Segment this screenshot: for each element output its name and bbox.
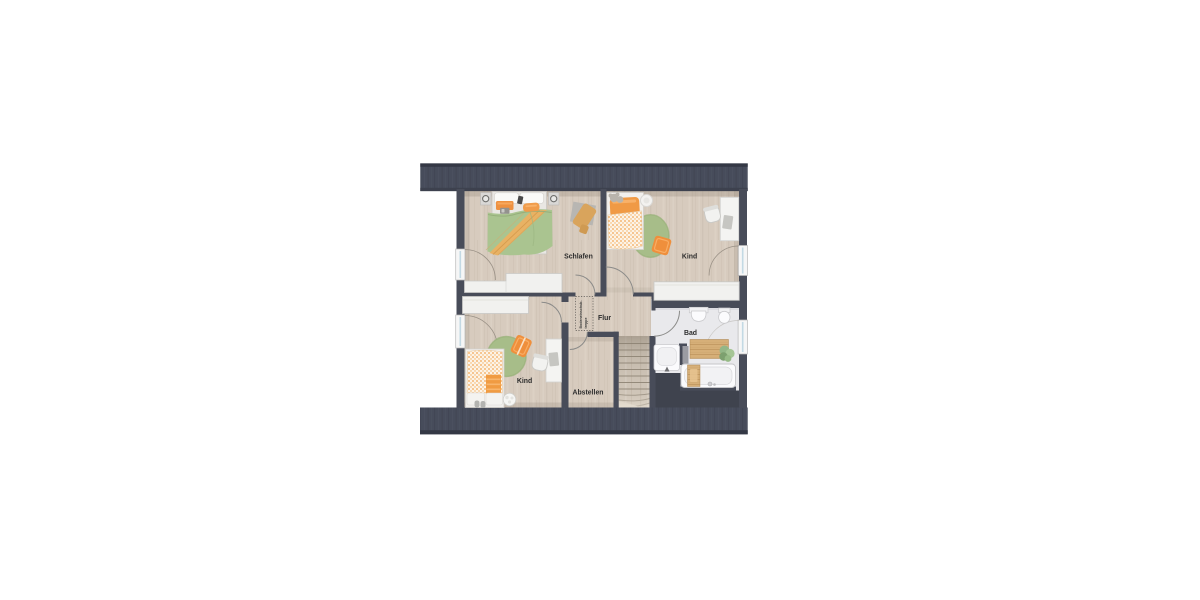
- svg-text:Kind: Kind: [517, 378, 532, 385]
- svg-text:Bodeneinschub-: Bodeneinschub-: [579, 300, 583, 329]
- svg-text:Schlafen: Schlafen: [564, 254, 593, 261]
- svg-text:treppe: treppe: [584, 318, 588, 329]
- svg-text:Kind: Kind: [682, 253, 697, 260]
- svg-text:Abstellen: Abstellen: [572, 389, 603, 396]
- svg-text:Flur: Flur: [598, 315, 611, 322]
- svg-text:Bad: Bad: [684, 330, 697, 337]
